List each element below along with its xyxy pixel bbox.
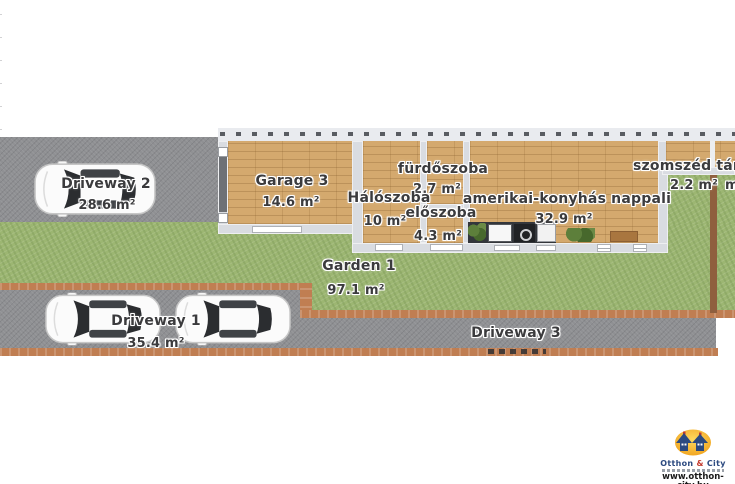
label-nappali-name: amerikai-konyhás nappali [463, 191, 671, 209]
label-driveway1-area: 35.4 m² [127, 336, 184, 352]
plant [565, 228, 595, 242]
label-garage3-area: 14.6 m² [262, 195, 319, 211]
kitchen-sink [488, 224, 512, 242]
label-garden1-name: Garden 1 [322, 258, 396, 276]
logo-brand-amp: & [697, 459, 704, 468]
otthon-city-logo: Otthon & City www.otthon-city.hu [650, 429, 735, 481]
label-szomszed-tarolo-area2-clipped: m [725, 178, 735, 194]
label-driveway1-name: Driveway 1 [111, 313, 201, 331]
label-furdoszoba-name: fürdőszoba [398, 161, 488, 179]
plant [468, 223, 486, 242]
label-nappali-area: 32.9 m² [535, 212, 592, 228]
label-driveway3-area-clipped [488, 349, 546, 354]
window [494, 245, 520, 251]
wall-hatch-ticks [220, 132, 735, 136]
label-eloszoba-area: 4.3 m² [414, 229, 462, 245]
label-szomszed-tarolo-area: 2.2 m² [670, 178, 718, 194]
window [597, 244, 611, 252]
logo-brand-city: City [707, 459, 726, 468]
label-garage3-name: Garage 3 [255, 173, 328, 191]
label-szomszed-tarolo-name: szomszéd táro [633, 158, 735, 176]
window [375, 244, 403, 251]
wall-corner-marker [218, 213, 228, 223]
fence-garden-bottom [300, 310, 735, 318]
garage-window [252, 226, 302, 233]
wall-corner-marker [218, 147, 228, 157]
fence-site-bottom [0, 348, 718, 356]
otthon-city-logo-mark [673, 429, 713, 456]
garage-door [219, 156, 227, 212]
otthon-city-logo-brand: Otthon & City [650, 460, 735, 468]
window [633, 244, 647, 252]
logo-url: www.otthon-city.hu [650, 473, 735, 484]
fence-driveway1-top [0, 283, 312, 290]
label-haloszoba-area: 10 m² [364, 214, 407, 230]
kitchen-stove [514, 224, 535, 242]
label-driveway3-name: Driveway 3 [471, 325, 561, 343]
ruler-ticks [0, 14, 2, 136]
label-garden1-area: 97.1 m² [327, 283, 384, 299]
building-top-wall [218, 128, 735, 141]
floor-plan-canvas: Driveway 2 28.6 m² Garage 3 14.6 m² fürd… [0, 0, 735, 484]
label-driveway2-name: Driveway 2 [61, 176, 151, 194]
label-driveway2-area: 28.6 m² [78, 198, 135, 214]
logo-brand-otthon: Otthon [660, 459, 693, 468]
bench [610, 231, 638, 242]
window [536, 245, 556, 251]
